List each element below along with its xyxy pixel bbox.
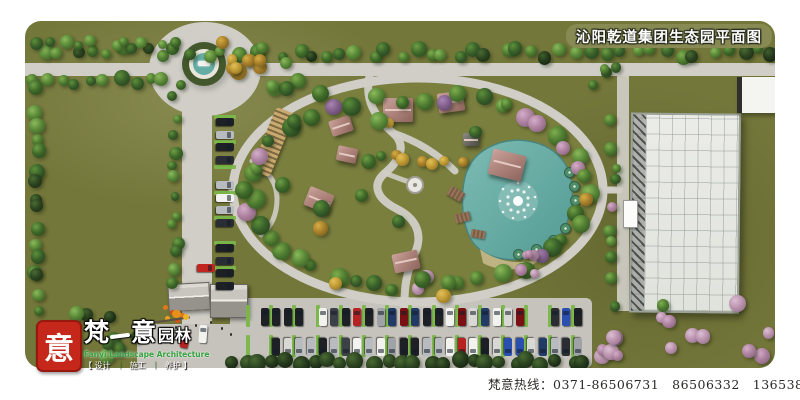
- tree: [170, 37, 181, 48]
- tree: [434, 49, 446, 61]
- tree: [87, 45, 98, 56]
- tree: [538, 51, 551, 64]
- tree: [458, 157, 468, 167]
- tree: [306, 51, 317, 62]
- car: [216, 194, 234, 202]
- tree: [525, 45, 537, 57]
- car: [516, 308, 524, 326]
- tree: [426, 158, 438, 170]
- car: [551, 308, 559, 326]
- car: [493, 338, 501, 356]
- person: [221, 327, 223, 330]
- tree: [68, 79, 78, 89]
- car: [261, 308, 269, 326]
- tree: [303, 109, 320, 126]
- tree: [169, 147, 182, 160]
- tree: [452, 351, 469, 368]
- tree: [411, 41, 427, 57]
- tree: [494, 264, 511, 281]
- tree: [574, 355, 589, 368]
- tree: [167, 91, 177, 101]
- tree: [31, 249, 45, 263]
- tree: [436, 289, 450, 303]
- brand-name: 梵 意 园林: [84, 318, 204, 348]
- tree: [293, 356, 310, 368]
- tree: [366, 356, 383, 368]
- car: [216, 143, 234, 151]
- tree: [96, 74, 107, 85]
- tree: [312, 85, 329, 102]
- separator: ｜: [116, 361, 124, 370]
- car: [562, 308, 570, 326]
- tree: [368, 88, 384, 104]
- brand-english: Fanyi Landscape Architecture: [84, 350, 214, 359]
- car: [411, 338, 419, 356]
- car: [388, 338, 396, 356]
- tree: [601, 47, 614, 60]
- tree: [696, 329, 710, 343]
- tree: [476, 88, 493, 105]
- greenhouse: [629, 112, 741, 313]
- car: [284, 308, 292, 326]
- tree: [366, 275, 382, 291]
- car: [400, 338, 408, 356]
- tree: [184, 49, 195, 60]
- tree: [225, 356, 239, 368]
- tree: [60, 35, 74, 49]
- tree: [313, 221, 328, 236]
- car: [197, 264, 215, 272]
- tree: [350, 275, 362, 287]
- tree: [251, 148, 268, 165]
- car: [307, 338, 315, 356]
- tree: [74, 41, 83, 50]
- plan-title: 沁阳乾道集团生态园平面图: [566, 24, 772, 48]
- car: [411, 308, 419, 326]
- car: [272, 308, 280, 326]
- hotline-text: 梵意热线：0371-86506731 86506332 13653862676（…: [488, 377, 800, 392]
- tree: [254, 54, 267, 67]
- tree: [607, 202, 617, 212]
- umbrella: [569, 181, 580, 192]
- service-maintenance: 养护: [165, 361, 181, 370]
- tree: [398, 52, 409, 63]
- tree: [476, 354, 493, 368]
- car: [216, 131, 234, 139]
- tree: [436, 357, 450, 368]
- tree: [754, 348, 770, 364]
- brand-char-1: 梵: [84, 318, 109, 348]
- tree: [262, 135, 274, 147]
- car: [493, 308, 501, 326]
- tree: [404, 355, 420, 368]
- car: [504, 338, 512, 356]
- tree: [29, 118, 45, 134]
- service-list: 【 设计 ｜ 施工 ｜ 养护 】: [84, 360, 214, 371]
- car: [365, 338, 373, 356]
- car: [216, 156, 234, 164]
- tree: [114, 70, 130, 86]
- parking-stall: [214, 165, 236, 169]
- tree: [606, 330, 621, 345]
- car: [353, 308, 361, 326]
- tree: [449, 85, 466, 102]
- tree: [470, 271, 484, 285]
- tree: [577, 169, 591, 183]
- site-area: [25, 21, 775, 368]
- tree: [333, 48, 345, 60]
- car: [388, 308, 396, 326]
- tree: [131, 77, 144, 90]
- tree: [508, 41, 522, 55]
- tree: [32, 289, 45, 302]
- tree: [385, 284, 397, 296]
- car: [481, 308, 489, 326]
- tree: [41, 73, 54, 86]
- tree: [530, 269, 539, 278]
- car: [295, 308, 303, 326]
- car: [216, 244, 234, 252]
- tree: [168, 263, 181, 276]
- person: [210, 321, 212, 324]
- tree: [280, 57, 292, 69]
- tree: [216, 36, 229, 49]
- tree: [396, 153, 408, 165]
- tree: [167, 161, 176, 170]
- car: [458, 308, 466, 326]
- parking-stall: [524, 305, 528, 327]
- tree: [275, 177, 291, 193]
- bracket: 【: [84, 361, 92, 370]
- tree: [154, 72, 168, 86]
- car: [539, 338, 547, 356]
- car: [423, 308, 431, 326]
- tree: [287, 114, 302, 129]
- tree: [370, 112, 387, 129]
- brand-suffix: 园林: [158, 324, 192, 348]
- tree: [333, 357, 346, 368]
- seal-character: 意: [44, 324, 74, 368]
- bracket: 】: [183, 361, 191, 370]
- car: [574, 308, 582, 326]
- car: [319, 308, 327, 326]
- tree: [414, 271, 431, 288]
- brush-stroke: [110, 333, 130, 339]
- car: [423, 338, 431, 356]
- car: [330, 308, 338, 326]
- tree: [528, 115, 545, 132]
- tree: [171, 192, 180, 201]
- tree: [346, 352, 364, 368]
- tree: [515, 264, 527, 276]
- tree: [532, 357, 548, 368]
- brand-char-2: 意: [131, 318, 156, 348]
- car: [216, 206, 234, 214]
- car: [504, 308, 512, 326]
- seal-stamp: 意: [36, 320, 82, 372]
- car: [446, 308, 454, 326]
- tree: [612, 164, 621, 173]
- tree: [611, 62, 621, 72]
- tree: [416, 93, 432, 109]
- tree: [32, 143, 46, 157]
- greenhouse-entrance: [623, 200, 638, 228]
- tree: [710, 47, 721, 58]
- tree: [588, 80, 598, 90]
- tree: [167, 219, 176, 228]
- separator: ｜: [151, 361, 159, 370]
- service-design: 设计: [95, 361, 111, 370]
- car: [216, 181, 234, 189]
- tree: [119, 37, 128, 46]
- hotline: 梵意热线：0371-86506731 86506332 13653862676（…: [488, 374, 800, 393]
- white-building: [737, 77, 775, 113]
- tree: [662, 315, 675, 328]
- tree: [469, 126, 481, 138]
- car: [216, 118, 234, 126]
- tree: [319, 352, 335, 368]
- car: [216, 269, 234, 277]
- umbrella: [560, 223, 571, 234]
- tree: [552, 43, 565, 56]
- car: [216, 257, 234, 265]
- car: [400, 308, 408, 326]
- tree: [376, 42, 390, 56]
- tree: [396, 96, 408, 108]
- car: [435, 308, 443, 326]
- plan-title-text: 沁阳乾道集团生态园平面图: [576, 26, 762, 47]
- car: [216, 282, 234, 290]
- tree: [69, 306, 84, 321]
- tree: [31, 222, 45, 236]
- parking-stall: [246, 305, 250, 327]
- car: [365, 308, 373, 326]
- car: [469, 308, 477, 326]
- tree: [492, 356, 504, 368]
- tree: [665, 342, 677, 354]
- car: [574, 338, 582, 356]
- site-plan-rendering: 沁阳乾道集团生态园平面图 意 梵 意 园林 Fanyi Landscape Ar…: [0, 0, 800, 400]
- tree: [176, 80, 186, 90]
- car: [377, 338, 385, 356]
- tree: [313, 200, 330, 217]
- fountain: [498, 181, 538, 221]
- central-plaza: [406, 176, 424, 194]
- service-construction: 施工: [130, 361, 146, 370]
- car: [295, 338, 303, 356]
- tree: [135, 37, 146, 48]
- tree: [517, 351, 534, 368]
- car: [216, 219, 234, 227]
- tree: [50, 47, 62, 59]
- tree: [579, 193, 593, 207]
- tree: [657, 299, 669, 311]
- tree: [763, 47, 775, 62]
- parking-stall: [246, 335, 250, 357]
- car: [435, 338, 443, 356]
- tree: [248, 354, 266, 368]
- tree: [361, 154, 376, 169]
- person: [230, 333, 232, 336]
- car: [377, 308, 385, 326]
- tree: [168, 130, 178, 140]
- bird-icon: [172, 310, 181, 318]
- tree: [346, 45, 361, 60]
- car: [562, 338, 570, 356]
- tree: [742, 344, 756, 358]
- tree: [291, 249, 309, 267]
- car: [342, 308, 350, 326]
